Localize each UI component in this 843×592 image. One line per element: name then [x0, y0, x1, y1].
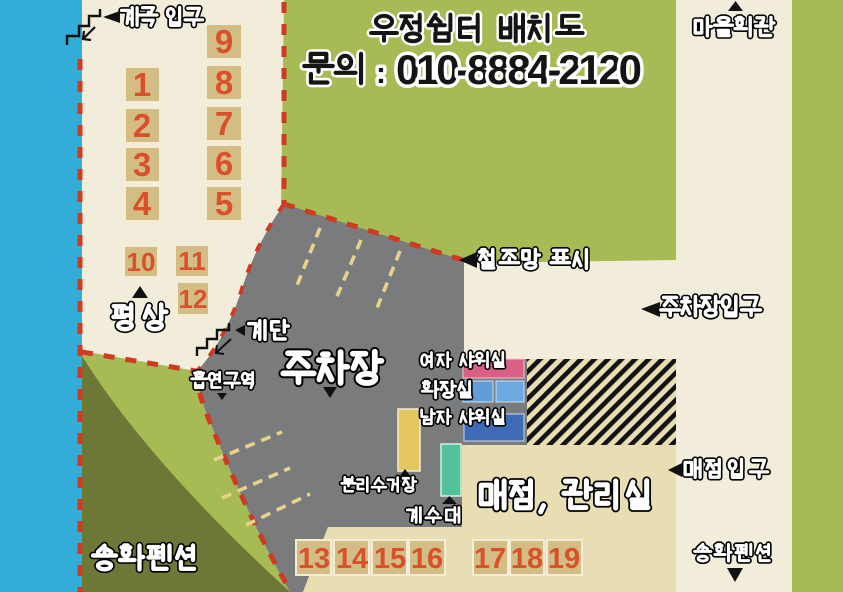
svg-text:16: 16: [411, 543, 443, 575]
svg-text:3: 3: [133, 146, 151, 183]
svg-text:19: 19: [548, 543, 580, 575]
svg-text:2: 2: [133, 107, 151, 144]
svg-text:13: 13: [298, 543, 330, 575]
svg-text:18: 18: [511, 543, 543, 575]
svg-text::: :: [376, 57, 386, 90]
svg-text:010-8884-2120: 010-8884-2120: [396, 46, 642, 93]
svg-text:7: 7: [215, 105, 233, 142]
svg-text:6: 6: [215, 145, 233, 182]
svg-text:4: 4: [133, 185, 152, 222]
svg-text:12: 12: [179, 284, 208, 314]
svg-text:1: 1: [133, 66, 151, 103]
svg-text:10: 10: [127, 247, 156, 277]
svg-text:8: 8: [215, 64, 233, 101]
svg-text:14: 14: [336, 543, 368, 575]
svg-text:15: 15: [374, 543, 406, 575]
svg-text:9: 9: [215, 23, 233, 60]
svg-text:5: 5: [215, 185, 233, 222]
svg-text:11: 11: [178, 246, 206, 276]
svg-text:17: 17: [474, 543, 506, 575]
